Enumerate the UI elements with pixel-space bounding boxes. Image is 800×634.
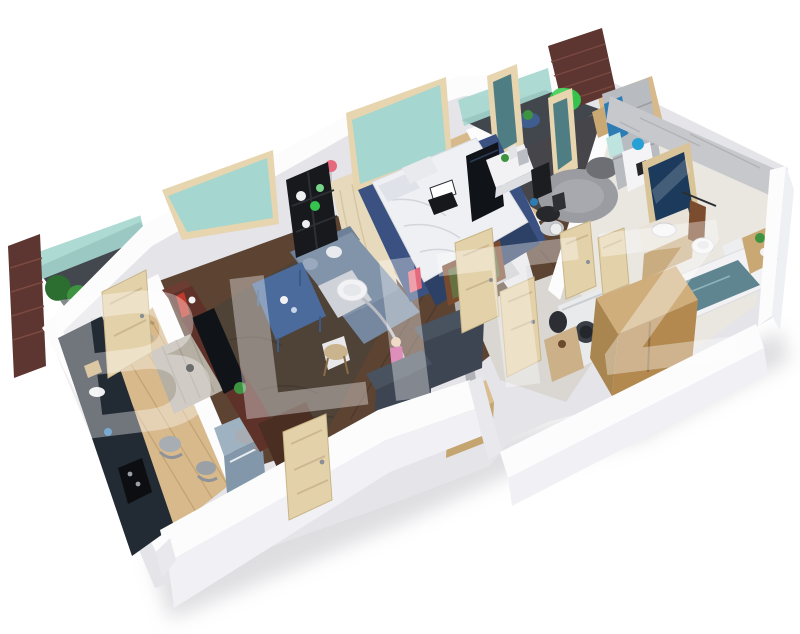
stove-knob	[136, 482, 141, 487]
apartment-3d-render: BLITZ	[0, 0, 800, 634]
floorplan-screenshot: BLITZ	[0, 0, 800, 634]
door-knob	[320, 460, 325, 465]
shelf-decor	[316, 184, 324, 192]
table-plant	[523, 110, 533, 120]
shelf-decor	[310, 201, 320, 211]
blue-ball-lamp	[632, 138, 644, 150]
window-living	[162, 150, 279, 240]
shelf-decor	[296, 191, 306, 201]
desk-plant	[501, 154, 509, 162]
shelf-plant	[755, 233, 765, 243]
